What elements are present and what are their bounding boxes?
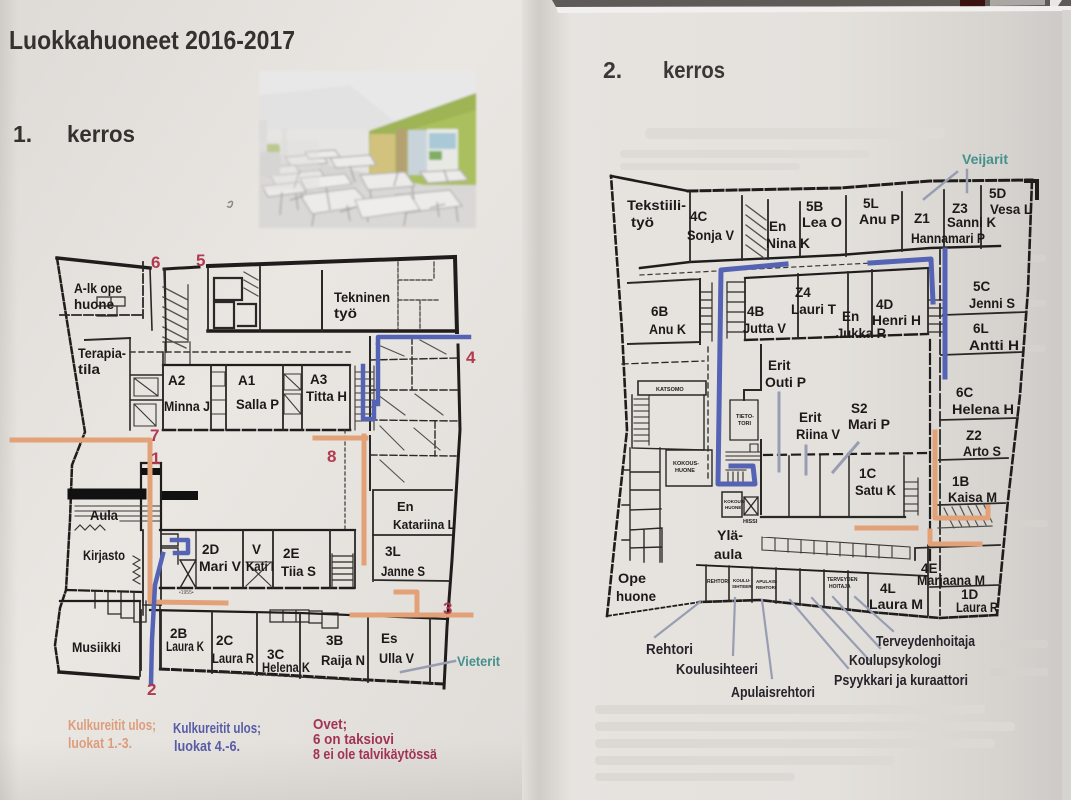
- svg-text:A1: A1: [238, 373, 256, 388]
- svg-text:Jukka R: Jukka R: [836, 326, 886, 341]
- svg-text:Erit: Erit: [768, 358, 791, 373]
- svg-text:5B: 5B: [806, 199, 824, 214]
- svg-text:Minna J: Minna J: [164, 399, 210, 414]
- svg-text:A2: A2: [168, 373, 185, 388]
- svg-text:REHTORI: REHTORI: [756, 585, 776, 590]
- svg-text:luokat 1.-3.: luokat 1.-3.: [68, 735, 132, 752]
- svg-text:Mari P: Mari P: [848, 417, 890, 432]
- svg-text:Z1: Z1: [914, 211, 930, 226]
- svg-text:Ylä-: Ylä-: [717, 527, 743, 543]
- svg-text:6L: 6L: [973, 321, 989, 336]
- svg-text:Anu P: Anu P: [859, 212, 900, 227]
- svg-text:Hannamari P: Hannamari P: [911, 231, 985, 246]
- svg-text:Jenni S: Jenni S: [969, 296, 1015, 311]
- svg-text:2.: 2.: [603, 57, 622, 83]
- svg-text:Koulupsykologi: Koulupsykologi: [849, 652, 941, 669]
- svg-text:KOKOUS-: KOKOUS-: [673, 461, 699, 467]
- svg-text:aula: aula: [714, 546, 742, 562]
- svg-text:S2: S2: [851, 401, 868, 416]
- svg-text:luokat 4.-6.: luokat 4.-6.: [174, 738, 240, 755]
- svg-text:Janne S: Janne S: [381, 564, 425, 579]
- svg-text:En: En: [842, 309, 859, 324]
- svg-text:HOITAJA: HOITAJA: [829, 584, 851, 590]
- svg-text:4: 4: [466, 348, 476, 367]
- svg-text:2D: 2D: [202, 542, 220, 557]
- svg-text:2: 2: [147, 680, 156, 699]
- svg-text:Riina V: Riina V: [796, 427, 840, 442]
- svg-text:HISSI: HISSI: [743, 519, 758, 525]
- svg-text:Tekstiili-: Tekstiili-: [627, 198, 686, 213]
- svg-text:huone: huone: [616, 588, 656, 604]
- svg-text:4B: 4B: [747, 304, 765, 319]
- svg-text:Nina K: Nina K: [766, 236, 810, 251]
- svg-text:Tiia S: Tiia S: [281, 564, 316, 579]
- svg-text:5L: 5L: [863, 196, 879, 211]
- svg-text:Terapia-: Terapia-: [78, 346, 126, 361]
- svg-text:kerros: kerros: [67, 121, 135, 147]
- svg-text:Kulkureitit ulos;: Kulkureitit ulos;: [173, 720, 261, 737]
- svg-text:HUONE: HUONE: [725, 505, 741, 510]
- svg-text:Vesa L: Vesa L: [990, 202, 1032, 217]
- svg-text:Sonja V: Sonja V: [687, 228, 734, 243]
- svg-text:Aula: Aula: [90, 508, 118, 523]
- svg-text:V: V: [252, 542, 261, 557]
- svg-text:APULAIS-: APULAIS-: [756, 579, 778, 584]
- svg-text:Apulaisrehtori: Apulaisrehtori: [731, 684, 815, 701]
- svg-text:5D: 5D: [989, 186, 1007, 201]
- svg-text:Z4: Z4: [795, 285, 811, 300]
- svg-text:työ: työ: [334, 306, 357, 321]
- svg-text:En: En: [769, 219, 786, 234]
- svg-text:1.: 1.: [13, 121, 32, 147]
- svg-text:Helena K: Helena K: [262, 660, 310, 675]
- svg-text:Ulla V: Ulla V: [379, 651, 414, 666]
- svg-text:1: 1: [151, 449, 160, 468]
- svg-text:Satu K: Satu K: [855, 483, 896, 498]
- svg-text:5: 5: [196, 251, 205, 270]
- svg-text:huone: huone: [74, 297, 114, 312]
- svg-text:Salla P: Salla P: [236, 397, 279, 412]
- svg-text:TIETO-: TIETO-: [736, 414, 754, 420]
- svg-text:Antti H: Antti H: [969, 338, 1019, 353]
- svg-text:Outi P: Outi P: [765, 375, 806, 390]
- svg-text:Psyykkari ja kuraattori: Psyykkari ja kuraattori: [834, 672, 968, 689]
- svg-text:8 ei ole talvikäytössä: 8 ei ole talvikäytössä: [313, 746, 438, 763]
- svg-text:Erit: Erit: [799, 410, 822, 425]
- svg-text:Arto S: Arto S: [963, 444, 1001, 459]
- svg-text:Musiikki: Musiikki: [72, 640, 121, 655]
- svg-text:A-lk ope: A-lk ope: [74, 281, 122, 296]
- svg-text:Ope: Ope: [618, 570, 646, 586]
- svg-text:Jutta V: Jutta V: [743, 321, 786, 336]
- svg-text:Z3: Z3: [952, 201, 968, 216]
- svg-text:SIHTEERI: SIHTEERI: [732, 584, 753, 589]
- svg-text:Koulusihteeri: Koulusihteeri: [676, 661, 758, 678]
- svg-text:6: 6: [151, 253, 160, 272]
- svg-text:Laura R: Laura R: [212, 651, 254, 666]
- svg-text:En: En: [397, 499, 414, 514]
- svg-text:Kati I: Kati I: [246, 559, 274, 574]
- svg-text:2E: 2E: [283, 546, 300, 561]
- svg-text:Tekninen: Tekninen: [334, 290, 390, 305]
- svg-text:Mari V: Mari V: [199, 559, 241, 574]
- svg-text:tila: tila: [78, 362, 101, 377]
- svg-text:HUONE: HUONE: [675, 468, 695, 474]
- svg-text:4C: 4C: [690, 209, 708, 224]
- svg-text:A3: A3: [310, 372, 328, 387]
- svg-text:Henri H: Henri H: [872, 313, 921, 328]
- svg-text:kerros: kerros: [663, 57, 725, 83]
- svg-text:Lauri T: Lauri T: [791, 302, 837, 317]
- svg-text:8: 8: [327, 447, 336, 466]
- svg-text:1B: 1B: [952, 474, 970, 489]
- svg-text:3B: 3B: [326, 633, 344, 648]
- svg-text:työ: työ: [631, 215, 654, 230]
- svg-text:4D: 4D: [876, 297, 894, 312]
- svg-text:TERVEYDEN: TERVEYDEN: [827, 577, 858, 583]
- svg-text:Laura M: Laura M: [869, 597, 923, 612]
- svg-text:Vieterit: Vieterit: [457, 654, 500, 669]
- svg-text:•1955•: •1955•: [179, 590, 194, 596]
- svg-text:Lea O: Lea O: [802, 215, 842, 230]
- svg-text:Anu K: Anu K: [649, 322, 686, 337]
- svg-text:REHTORI: REHTORI: [707, 579, 730, 585]
- svg-text:Luokkahuoneet 2016-2017: Luokkahuoneet 2016-2017: [9, 25, 295, 55]
- svg-text:Kaisa M: Kaisa M: [948, 490, 997, 505]
- svg-text:Raija N: Raija N: [321, 653, 365, 668]
- svg-text:Kulkureitit ulos;: Kulkureitit ulos;: [68, 717, 156, 734]
- svg-text:3: 3: [443, 599, 452, 618]
- svg-text:1C: 1C: [859, 466, 877, 481]
- svg-text:6C: 6C: [956, 385, 974, 400]
- svg-text:Katariina L: Katariina L: [393, 517, 455, 532]
- svg-text:KOULU-: KOULU-: [733, 578, 751, 583]
- svg-text:Laura R: Laura R: [956, 600, 998, 615]
- svg-text:3L: 3L: [385, 544, 401, 559]
- svg-text:Helena H: Helena H: [952, 402, 1014, 417]
- svg-text:Terveydenhoitaja: Terveydenhoitaja: [876, 633, 976, 650]
- svg-text:Rehtori: Rehtori: [646, 641, 693, 658]
- svg-text:Kirjasto: Kirjasto: [83, 548, 125, 563]
- svg-text:KOKOUS-: KOKOUS-: [724, 499, 746, 504]
- svg-text:Laura K: Laura K: [166, 639, 204, 654]
- svg-text:5C: 5C: [973, 279, 991, 294]
- svg-text:TORI: TORI: [738, 421, 752, 427]
- svg-text:KATSOMO: KATSOMO: [656, 387, 684, 393]
- svg-text:Es: Es: [381, 631, 398, 646]
- svg-text:Z2: Z2: [966, 428, 982, 443]
- svg-text:Titta H: Titta H: [306, 389, 347, 404]
- svg-text:4L: 4L: [880, 581, 896, 596]
- svg-text:Sanni K: Sanni K: [947, 215, 996, 230]
- svg-text:Veijarit: Veijarit: [962, 152, 1009, 167]
- svg-text:6B: 6B: [651, 304, 669, 319]
- svg-text:2C: 2C: [216, 633, 234, 648]
- svg-text:7: 7: [150, 426, 159, 445]
